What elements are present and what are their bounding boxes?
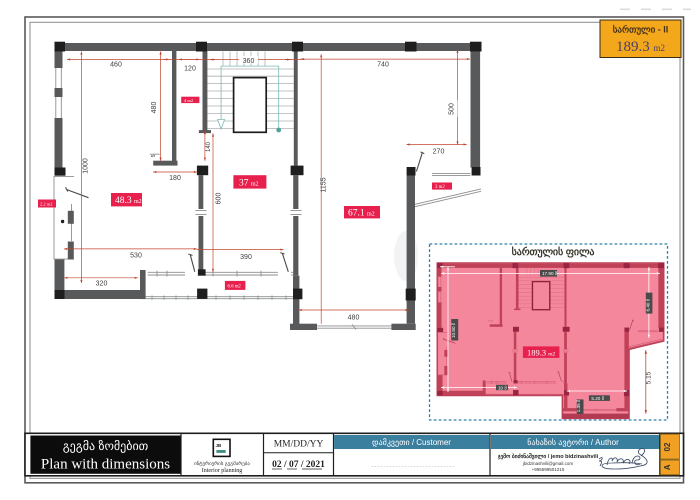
svg-text:5.15: 5.15 <box>646 371 653 384</box>
svg-text:5.20 მ: 5.20 მ <box>591 395 604 401</box>
svg-text:სართულის ფილა: სართულის ფილა <box>512 246 595 258</box>
svg-text:480: 480 <box>348 315 360 322</box>
svg-text:10.80 მ: 10.80 მ <box>450 322 456 338</box>
svg-text:270: 270 <box>433 149 445 156</box>
svg-text:ჯემო ბიძინაშვილი / jemo bidzin: ჯემო ბიძინაშვილი / jemo bidzinashvili <box>497 452 599 460</box>
svg-text:MM/DD/YY: MM/DD/YY <box>274 440 324 450</box>
svg-text:530: 530 <box>130 253 142 260</box>
svg-text:4 m2: 4 m2 <box>184 98 193 103</box>
svg-text:180: 180 <box>169 175 181 182</box>
svg-text:ინტერიერის გეგმარება: ინტერიერის გეგმარება <box>194 460 250 467</box>
svg-text:480: 480 <box>151 102 158 114</box>
svg-text:02 / 07 / 2021: 02 / 07 / 2021 <box>272 460 325 470</box>
svg-text:360: 360 <box>243 58 255 65</box>
svg-text:740: 740 <box>377 62 389 69</box>
svg-text:390: 390 <box>240 254 252 261</box>
svg-text:jbidzinashvili@gmail.com: jbidzinashvili@gmail.com <box>522 461 574 466</box>
svg-text:320: 320 <box>96 281 108 288</box>
svg-text:17.90 მ: 17.90 მ <box>542 270 558 276</box>
svg-text:2.2 m2: 2.2 m2 <box>40 202 53 207</box>
svg-text:02: 02 <box>663 442 672 451</box>
svg-text:1.35 მ: 1.35 მ <box>575 399 581 412</box>
svg-text:500: 500 <box>449 103 456 115</box>
svg-text:ნახაზის ავტორი / Author: ნახაზის ავტორი / Author <box>527 438 619 447</box>
svg-text:გეგმა ზომებით: გეგმა ზომებით <box>63 439 149 453</box>
svg-text:Interior planning: Interior planning <box>202 468 243 474</box>
svg-text:A: A <box>663 464 672 470</box>
svg-text:სართული - II: სართული - II <box>613 25 669 36</box>
svg-text:600: 600 <box>216 193 223 205</box>
svg-text:6.6 m2: 6.6 m2 <box>228 285 242 290</box>
svg-text:Plan with dimensions: Plan with dimensions <box>41 457 170 473</box>
svg-text:10 მ: 10 მ <box>498 384 507 390</box>
svg-text:140: 140 <box>206 141 212 152</box>
svg-text:დამკვეთი / Customer: დამკვეთი / Customer <box>372 438 451 447</box>
svg-text:5: 5 <box>151 154 157 157</box>
svg-text:1000: 1000 <box>83 158 90 174</box>
svg-text:JB: JB <box>216 443 223 448</box>
svg-text:3 m2: 3 m2 <box>435 185 445 190</box>
svg-text:1155: 1155 <box>321 177 328 192</box>
svg-text:120: 120 <box>184 66 196 73</box>
svg-text:6.40 მ: 6.40 მ <box>644 298 650 311</box>
svg-text:+995599501215: +995599501215 <box>532 467 565 472</box>
svg-text:460: 460 <box>110 62 122 69</box>
